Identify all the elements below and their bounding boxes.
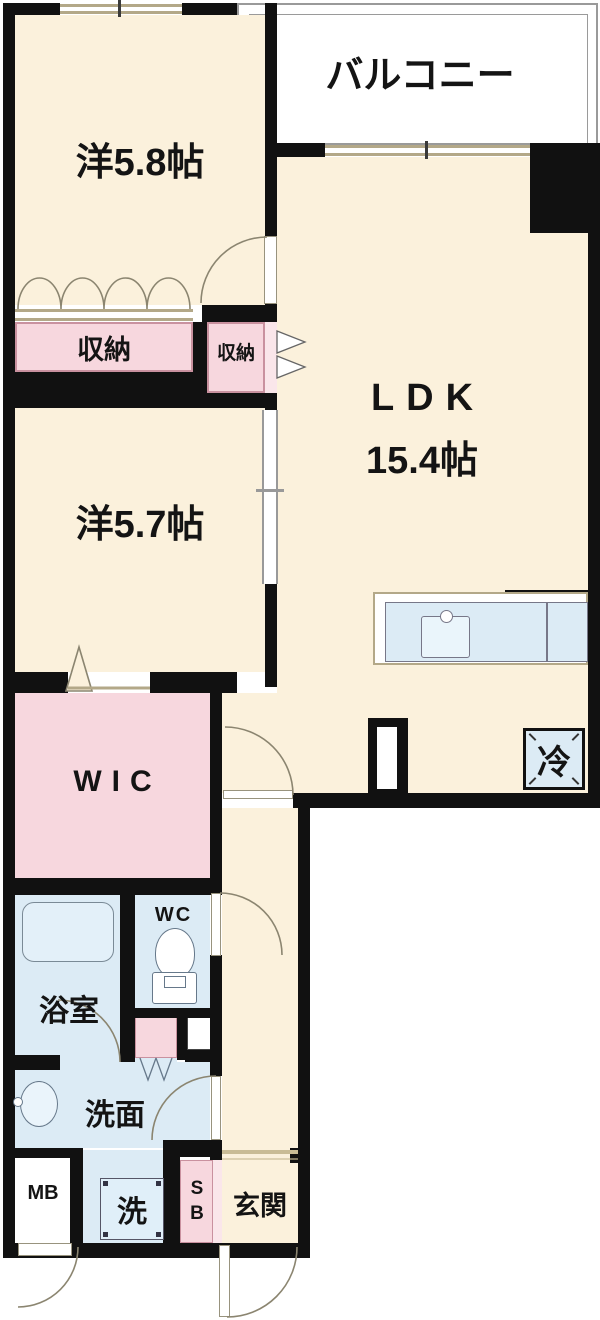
toilet-tank-detail <box>164 976 186 988</box>
washer-label: 洗 <box>100 1178 164 1240</box>
storage-right-label: 収納 <box>207 330 265 372</box>
entrance-door-leaf <box>219 1245 230 1317</box>
sliding-door-tick <box>256 489 284 492</box>
pillar-slot <box>377 727 397 789</box>
wall-ldk-top-corner <box>530 143 600 233</box>
shoe-box-label: SB <box>181 1164 213 1240</box>
bedroom1-label: 洋5.8帖 <box>20 132 260 184</box>
hallway-door-leaf <box>223 790 293 799</box>
bedroom1-window <box>60 4 182 14</box>
entrance-step-line2 <box>222 1158 298 1160</box>
wall-toilet-bottom <box>133 1008 213 1018</box>
wall-storage-bottom-left <box>15 372 193 408</box>
wall-ldk-right <box>588 233 600 808</box>
washroom-floor-strip <box>135 1058 177 1064</box>
wic-label: WIC <box>15 758 210 806</box>
toilet-door-leaf <box>211 893 221 956</box>
ldk-window-tick <box>425 141 428 159</box>
wall-bedroom1-right <box>265 3 277 237</box>
meter-box-label: MB <box>15 1176 71 1210</box>
wall-ldk-bottom <box>293 793 600 808</box>
wall-wic-bottom <box>3 878 222 895</box>
wall-wic-right <box>210 693 222 895</box>
bathtub-icon <box>22 902 114 962</box>
entrance-label: 玄関 <box>222 1180 298 1226</box>
wall-sb-top <box>163 1140 217 1157</box>
mb-door-leaf <box>18 1243 72 1256</box>
entrance-step-line <box>222 1150 298 1154</box>
toilet-bowl-icon <box>155 928 195 978</box>
bedroom1-door-leaf <box>264 236 277 304</box>
floorplan-page: { "floorplan": { "balcony": { "label": "… <box>0 0 600 1320</box>
kitchen-counter <box>385 602 588 662</box>
hallway-upper-floor <box>222 693 298 793</box>
wall-bedroom2-right <box>265 583 277 687</box>
wall-wic-top-left <box>3 672 68 693</box>
bedroom2-sliding-door <box>262 410 278 584</box>
bedroom2-label: 洋5.7帖 <box>20 494 260 546</box>
storage-right-opening <box>265 322 277 393</box>
wall-bath-bottom <box>3 1055 60 1070</box>
wall-ldk-top-left <box>265 143 325 157</box>
ldk-label: LDK <box>300 372 544 424</box>
balcony-label: バルコニー <box>280 42 560 100</box>
wall-closet-bottom <box>185 1050 213 1062</box>
hallway-floor <box>222 808 298 1150</box>
kitchen-counter-divider <box>546 603 548 661</box>
washbasin-faucet-icon <box>13 1097 23 1107</box>
toilet-label: WC <box>137 898 210 932</box>
wall-wic-top-right <box>150 672 237 693</box>
closet-track <box>15 309 193 321</box>
linen-closet-box <box>135 1013 177 1058</box>
wall-top-right <box>182 3 237 15</box>
bathroom-label: 浴室 <box>15 988 123 1028</box>
wall-storage-right-top <box>202 305 277 322</box>
washroom-door-leaf <box>211 1076 221 1140</box>
wall-top-left <box>3 3 60 15</box>
wall-hall-left-mid <box>210 955 222 1076</box>
kitchen-faucet-icon <box>440 610 453 623</box>
storage-left-label: 収納 <box>15 324 193 370</box>
bedroom1-window-tick <box>118 0 121 17</box>
wall-storage-divider <box>193 322 207 393</box>
ldk-size-label: 15.4帖 <box>300 430 544 482</box>
refrigerator-label: 冷 <box>523 728 585 790</box>
shoe-box-opening <box>213 1160 222 1243</box>
wall-hall-right <box>298 808 310 1258</box>
washroom-label: 洗面 <box>40 1090 190 1134</box>
wall-mb-right <box>70 1148 83 1243</box>
